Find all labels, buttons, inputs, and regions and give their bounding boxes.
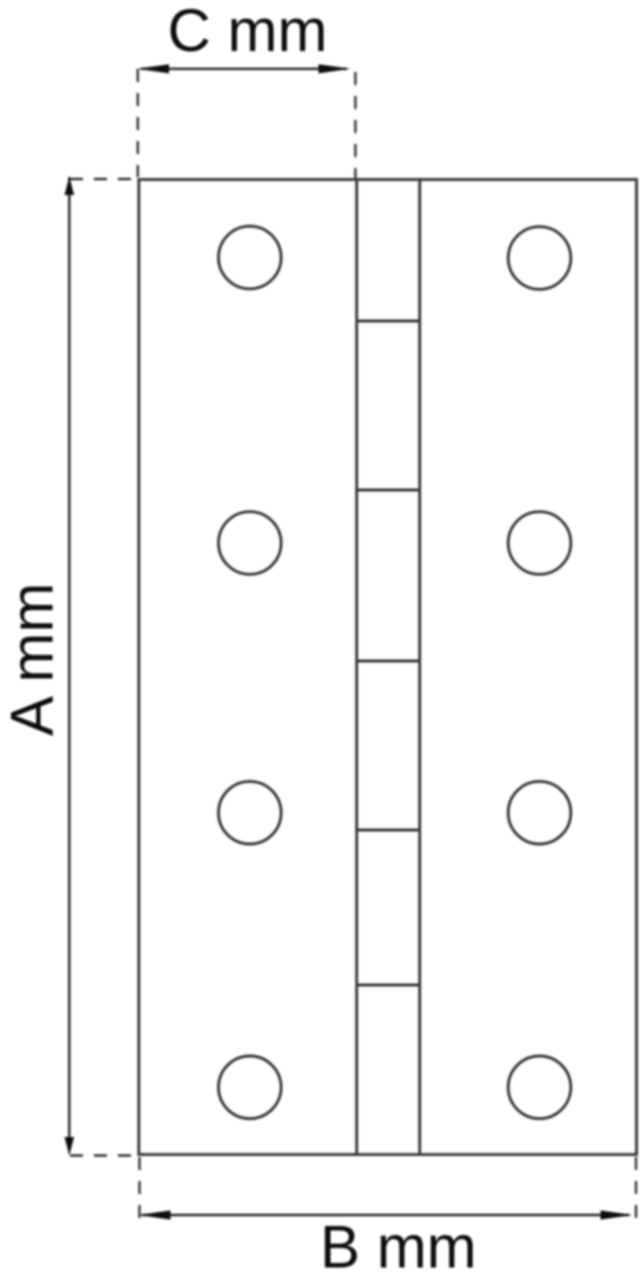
- svg-text:C mm: C mm: [168, 0, 328, 64]
- svg-text:B mm: B mm: [320, 1214, 477, 1281]
- svg-text:A mm: A mm: [0, 583, 66, 736]
